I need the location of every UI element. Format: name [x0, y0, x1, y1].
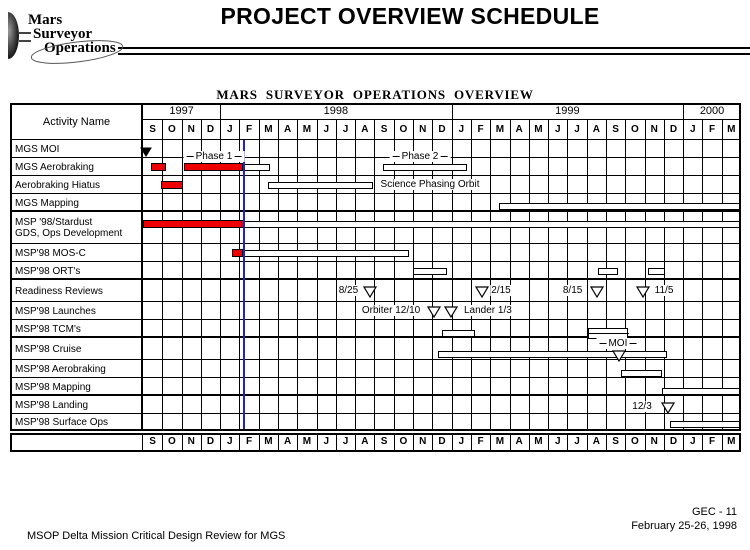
label-dash	[440, 156, 447, 157]
activity-row-label: MGS Mapping	[12, 194, 143, 212]
month-label: O	[162, 124, 181, 135]
activity-row-label: MSP '98/StardustGDS, Ops Development	[12, 212, 143, 244]
strip-month-label: N	[182, 436, 201, 447]
month-grid-line	[510, 120, 511, 431]
month-label: M	[297, 124, 316, 135]
activity-row-label: MSP'98 Launches	[12, 302, 143, 320]
bar-label: 8/15	[562, 285, 583, 296]
activity-row-label-line: MSP'98 TCM's	[15, 324, 143, 335]
month-grid-line	[587, 120, 588, 431]
bar-label: MOI	[596, 338, 639, 349]
strip-month-label: J	[452, 436, 471, 447]
gantt-bar-complete	[184, 163, 243, 171]
strip-month-label: S	[143, 436, 162, 447]
month-label: J	[683, 124, 702, 135]
logo-swoosh	[28, 38, 128, 68]
strip-month-label: O	[394, 436, 413, 447]
gantt-bar-midline	[589, 333, 629, 334]
gantt-bar-planned	[268, 182, 373, 189]
strip-month-label: M	[490, 436, 509, 447]
label-dash	[393, 156, 400, 157]
month-grid-line	[317, 120, 318, 431]
bar-label: 2/15	[490, 285, 511, 296]
month-label: O	[394, 124, 413, 135]
month-label: M	[490, 124, 509, 135]
activity-row-label-line: MSP '98/Stardust	[15, 217, 143, 228]
gantt-bar-planned	[244, 250, 410, 257]
gantt-bar-planned	[413, 268, 447, 275]
strip-border	[10, 433, 741, 435]
bar-label-text: MOI	[608, 338, 627, 349]
gantt-bar-complete	[151, 163, 166, 171]
chart-border	[10, 429, 741, 431]
milestone-filled-icon	[140, 144, 152, 154]
strip-month-label: F	[239, 436, 258, 447]
logo: Mars Surveyor Operations	[0, 0, 160, 70]
mars-disk-icon	[8, 12, 19, 59]
month-grid-line	[548, 120, 549, 431]
gantt-bar-complete	[161, 181, 183, 189]
strip-border	[739, 433, 741, 452]
strip-month-label: A	[510, 436, 529, 447]
month-grid-line	[722, 120, 723, 431]
month-label: J	[220, 124, 239, 135]
gantt-bar-planned	[244, 221, 741, 228]
strip-month-label: A	[355, 436, 374, 447]
gantt-bar-planned	[383, 164, 467, 171]
strip-month-label: D	[201, 436, 220, 447]
month-label: J	[548, 124, 567, 135]
month-label: N	[182, 124, 201, 135]
year-label: 2000	[683, 105, 741, 117]
month-label: N	[413, 124, 432, 135]
bar-label: 11/5	[654, 285, 675, 296]
bottom-month-strip: SONDJFMAMJJASONDJFMAMJJASONDJFM	[10, 433, 741, 452]
strip-month-label: A	[278, 436, 297, 447]
footer-gec: GEC - 11	[440, 505, 737, 519]
month-label: J	[336, 124, 355, 135]
gantt-bar-planned	[662, 388, 741, 395]
month-label: S	[606, 124, 625, 135]
month-grid-line	[355, 120, 356, 431]
strip-month-label: M	[297, 436, 316, 447]
bar-label: Science Phasing Orbit	[380, 179, 481, 190]
month-label: M	[529, 124, 548, 135]
gantt-bar-planned	[598, 268, 618, 275]
milestone-open-icon	[612, 349, 626, 361]
gantt-bar-planned	[499, 203, 741, 210]
activity-row-label-line: Aerobraking Hiatus	[15, 180, 143, 191]
activity-row-label-line: MGS Aerobraking	[15, 162, 143, 173]
month-label: A	[355, 124, 374, 135]
header-mid-line	[143, 119, 741, 120]
label-dash	[629, 343, 636, 344]
gantt-bar-planned	[621, 370, 662, 377]
gantt-bar-planned	[442, 330, 475, 337]
activity-row-label-line: GDS, Ops Development	[15, 228, 143, 239]
strip-month-label: D	[664, 436, 683, 447]
strip-month-label: J	[220, 436, 239, 447]
chart-border	[10, 103, 12, 431]
label-dash	[234, 156, 241, 157]
activity-row-label: MSP'98 MOS-C	[12, 244, 143, 262]
month-grid-line	[297, 120, 298, 431]
bar-label: 8/25	[338, 285, 359, 296]
strip-month-label: S	[606, 436, 625, 447]
gantt-bar-planned	[670, 421, 741, 428]
activity-row-label: MSP'98 Aerobraking	[12, 360, 143, 378]
month-label: A	[510, 124, 529, 135]
activity-row-label: MSP'98 Cruise	[12, 338, 143, 360]
month-grid-line	[645, 120, 646, 431]
milestone-open-icon	[590, 285, 604, 297]
month-label: D	[432, 124, 451, 135]
month-label: S	[374, 124, 393, 135]
strip-month-label: O	[162, 436, 181, 447]
activity-row-label-line: MSP'98 Mapping	[15, 382, 143, 393]
month-grid-line	[683, 120, 684, 431]
gantt-bar-planned	[244, 164, 270, 171]
page-title: PROJECT OVERVIEW SCHEDULE	[195, 3, 625, 30]
activity-row-label: MGS Aerobraking	[12, 158, 143, 176]
year-label: 1998	[220, 105, 451, 117]
strip-month-label: M	[529, 436, 548, 447]
milestone-open-icon	[363, 285, 377, 297]
milestone-open-icon	[636, 285, 650, 297]
bar-label: Phase 1	[184, 151, 245, 162]
month-label: O	[625, 124, 644, 135]
activity-row-label-line: MSP'98 ORT's	[15, 266, 143, 277]
strip-month-label: J	[336, 436, 355, 447]
activity-header-cell: Activity Name	[10, 103, 143, 140]
month-label: J	[567, 124, 586, 135]
bar-label: Phase 2	[390, 151, 451, 162]
strip-month-label: N	[645, 436, 664, 447]
strip-month-label: N	[413, 436, 432, 447]
month-grid-line	[471, 120, 472, 431]
activity-row-label: MSP'98 Landing	[12, 396, 143, 414]
month-label: J	[317, 124, 336, 135]
gantt-bar-planned	[648, 268, 665, 275]
activity-row-label-line: MSP'98 Launches	[15, 306, 143, 317]
bar-label: 12/3	[631, 401, 652, 412]
month-grid-line	[625, 120, 626, 431]
footer-block: GEC - 11 February 25-26, 1998	[440, 505, 737, 533]
activity-row-label: MSP'98 ORT's	[12, 262, 143, 280]
chart-border	[10, 103, 741, 105]
month-grid-line	[490, 120, 491, 431]
bar-label-text: Phase 2	[402, 151, 439, 162]
month-label: F	[471, 124, 490, 135]
month-grid-line	[374, 120, 375, 431]
month-label: F	[702, 124, 721, 135]
strip-month-label: J	[683, 436, 702, 447]
month-label: N	[645, 124, 664, 135]
month-grid-line	[278, 120, 279, 431]
strip-month-label: M	[259, 436, 278, 447]
month-label: J	[452, 124, 471, 135]
month-grid-line	[182, 120, 183, 431]
activity-row-label-line: MGS MOI	[15, 144, 143, 155]
activity-row-label-line: MSP'98 MOS-C	[15, 248, 143, 259]
footer-note: MSOP Delta Mission Critical Design Revie…	[27, 530, 285, 542]
strip-month-label: J	[317, 436, 336, 447]
milestone-open-icon	[475, 285, 489, 297]
label-dash	[599, 343, 606, 344]
gantt-bar-complete	[143, 220, 244, 228]
month-grid-line	[567, 120, 568, 431]
schedule-slide: Mars Surveyor Operations PROJECT OVERVIE…	[0, 0, 750, 550]
strip-month-label: S	[374, 436, 393, 447]
month-grid-line	[664, 120, 665, 431]
month-grid-line	[336, 120, 337, 431]
activity-row-label: MSP'98 Mapping	[12, 378, 143, 396]
activity-row-label: Aerobraking Hiatus	[12, 176, 143, 194]
header-rule	[118, 47, 750, 55]
strip-month-label: J	[567, 436, 586, 447]
chart-border	[739, 103, 741, 431]
year-label: 1999	[452, 105, 683, 117]
activity-row-label-line: Readiness Reviews	[15, 286, 143, 297]
month-label: A	[278, 124, 297, 135]
chart-title: MARS SURVEYOR OPERATIONS OVERVIEW	[0, 87, 750, 103]
strip-month-label: F	[471, 436, 490, 447]
strip-month-label: O	[625, 436, 644, 447]
activity-row-label: MSP'98 TCM's	[12, 320, 143, 338]
activity-row-label-line: MSP'98 Cruise	[15, 344, 143, 355]
month-label: S	[143, 124, 162, 135]
strip-border	[10, 450, 741, 452]
activity-row-label-line: MGS Mapping	[15, 198, 143, 209]
gantt-bar-complete	[232, 249, 244, 257]
month-grid-line	[529, 120, 530, 431]
bar-label: Lander 1/3	[463, 305, 513, 316]
milestone-open-icon	[661, 401, 675, 413]
strip-month-label: J	[548, 436, 567, 447]
activity-row-label: Readiness Reviews	[12, 280, 143, 302]
strip-border	[10, 433, 12, 452]
status-date-line	[243, 140, 245, 431]
year-label: 1997	[143, 105, 220, 117]
bar-label-text: Phase 1	[196, 151, 233, 162]
activity-row-label-line: MSP'98 Landing	[15, 400, 143, 411]
strip-month-label: A	[587, 436, 606, 447]
milestone-open-icon	[427, 305, 441, 317]
milestone-open-icon	[444, 305, 458, 317]
activity-row-label: MGS MOI	[12, 140, 143, 158]
gantt-chart: Activity Name1997SOND1998JFMAMJJASOND199…	[10, 103, 741, 431]
logo-text-mars: Mars	[28, 13, 62, 27]
month-label: M	[259, 124, 278, 135]
gantt-bar-planned	[438, 351, 667, 358]
month-label: A	[587, 124, 606, 135]
month-grid-line	[606, 120, 607, 431]
activity-row-label-line: MSP'98 Surface Ops	[15, 417, 143, 428]
month-grid-line	[702, 120, 703, 431]
activity-row-label-line: MSP'98 Aerobraking	[15, 364, 143, 375]
label-dash	[187, 156, 194, 157]
strip-month-label: F	[702, 436, 721, 447]
month-label: D	[201, 124, 220, 135]
footer-date: February 25-26, 1998	[440, 519, 737, 533]
month-label: D	[664, 124, 683, 135]
strip-month-label: D	[432, 436, 451, 447]
bar-label: Orbiter 12/10	[361, 305, 421, 316]
month-label: F	[239, 124, 258, 135]
